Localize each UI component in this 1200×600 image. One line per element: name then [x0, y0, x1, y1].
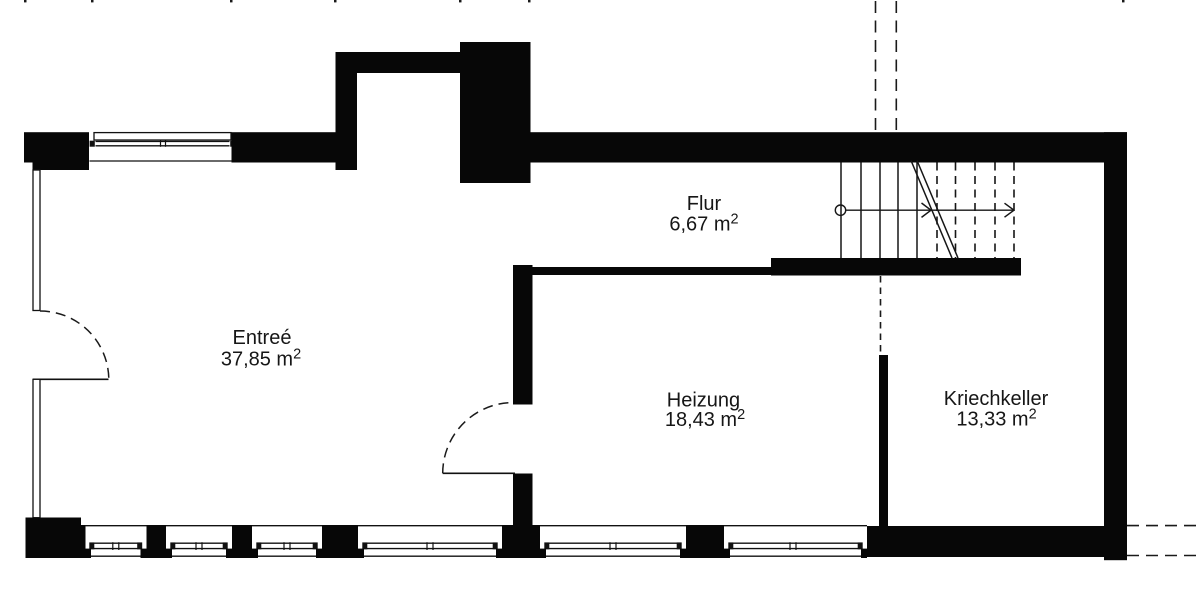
svg-text:37,85 m2: 37,85 m2 [221, 347, 301, 371]
svg-text:13,33 m2: 13,33 m2 [956, 407, 1036, 431]
svg-text:18,43 m2: 18,43 m2 [665, 407, 745, 431]
svg-text:Entreé: Entreé [233, 327, 292, 349]
svg-text:6,67 m2: 6,67 m2 [669, 212, 738, 236]
svg-text:Heizung: Heizung [667, 389, 740, 411]
svg-text:Flur: Flur [687, 193, 722, 215]
